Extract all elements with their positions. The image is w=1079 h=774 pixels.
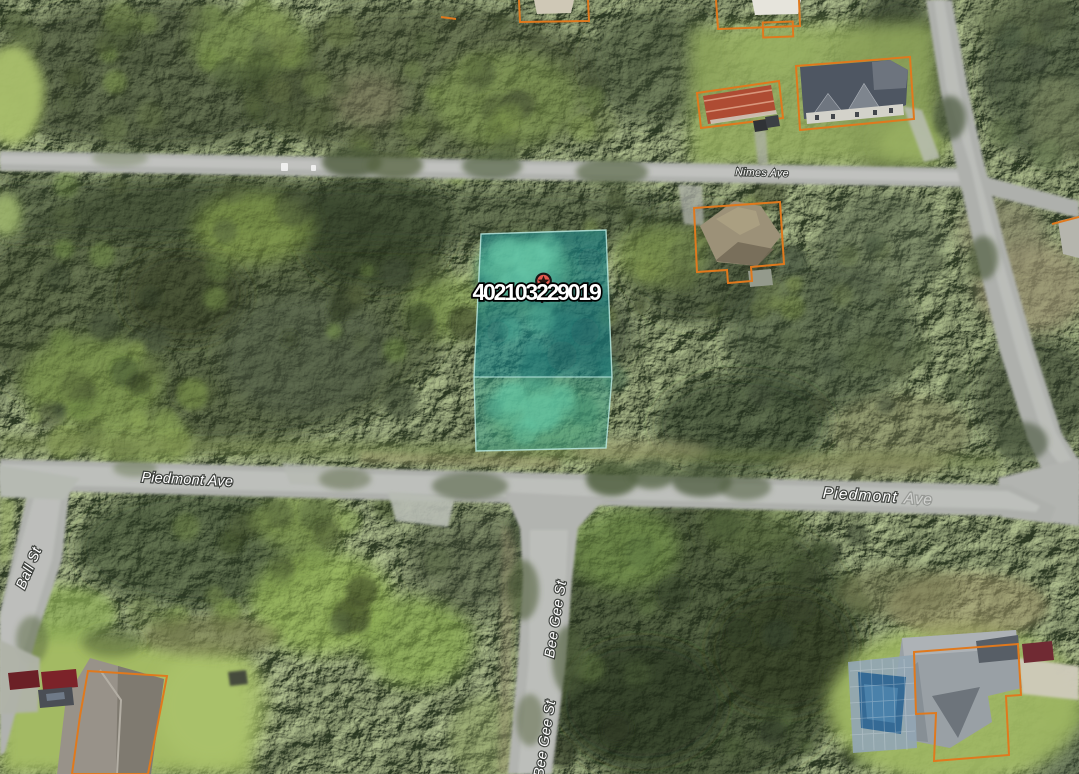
- svg-text:Nimes Ave: Nimes Ave: [735, 166, 789, 179]
- svg-text:402103229019: 402103229019: [472, 279, 601, 305]
- svg-text:Ave: Ave: [902, 490, 933, 509]
